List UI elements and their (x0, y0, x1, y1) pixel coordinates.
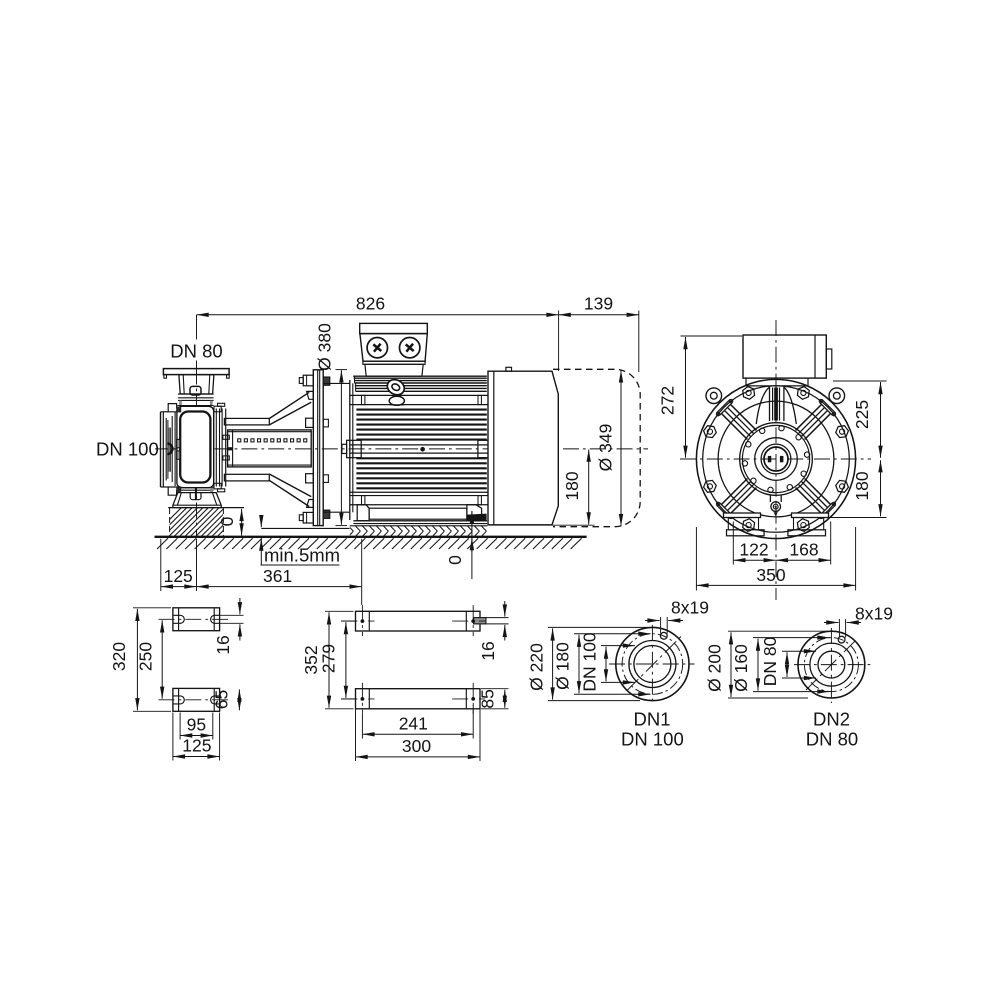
svg-text:122: 122 (739, 540, 768, 560)
svg-text:DN1: DN1 (633, 709, 670, 730)
svg-text:DN 100: DN 100 (96, 439, 159, 460)
svg-text:300: 300 (402, 736, 431, 756)
svg-text:0: 0 (445, 555, 465, 565)
svg-text:8x19: 8x19 (855, 604, 893, 624)
svg-text:DN 80: DN 80 (806, 729, 858, 750)
svg-text:Ø 380: Ø 380 (315, 323, 335, 371)
svg-text:85: 85 (477, 689, 497, 708)
svg-text:DN 80: DN 80 (170, 341, 222, 362)
svg-text:Ø 160: Ø 160 (731, 644, 751, 692)
svg-text:225: 225 (852, 400, 872, 429)
svg-text:DN2: DN2 (813, 709, 850, 730)
svg-text:272: 272 (657, 386, 677, 415)
svg-text:16: 16 (213, 635, 233, 654)
svg-text:180: 180 (562, 471, 582, 500)
svg-text:Ø 180: Ø 180 (552, 642, 572, 690)
svg-text:250: 250 (136, 642, 156, 671)
svg-text:279: 279 (319, 644, 339, 673)
svg-text:95: 95 (187, 715, 206, 735)
svg-text:Ø 349: Ø 349 (595, 424, 615, 472)
svg-text:DN 80: DN 80 (760, 636, 780, 686)
svg-text:8x19: 8x19 (671, 598, 709, 618)
svg-text:826: 826 (356, 294, 385, 314)
svg-text:DN 100: DN 100 (621, 729, 684, 750)
svg-text:125: 125 (182, 736, 211, 756)
svg-text:0: 0 (217, 516, 237, 526)
svg-text:16: 16 (478, 641, 498, 660)
svg-text:320: 320 (109, 642, 129, 671)
svg-text:350: 350 (756, 565, 785, 585)
svg-text:125: 125 (164, 566, 193, 586)
svg-text:180: 180 (852, 471, 872, 500)
svg-text:DN 100: DN 100 (579, 632, 599, 692)
svg-text:Ø 200: Ø 200 (705, 644, 725, 692)
svg-text:139: 139 (584, 294, 613, 314)
svg-text:65: 65 (211, 690, 231, 709)
svg-text:min.5mm: min.5mm (264, 545, 340, 566)
svg-text:168: 168 (789, 540, 818, 560)
svg-text:241: 241 (399, 713, 428, 733)
svg-text:Ø 220: Ø 220 (527, 643, 547, 691)
svg-text:361: 361 (263, 566, 292, 586)
